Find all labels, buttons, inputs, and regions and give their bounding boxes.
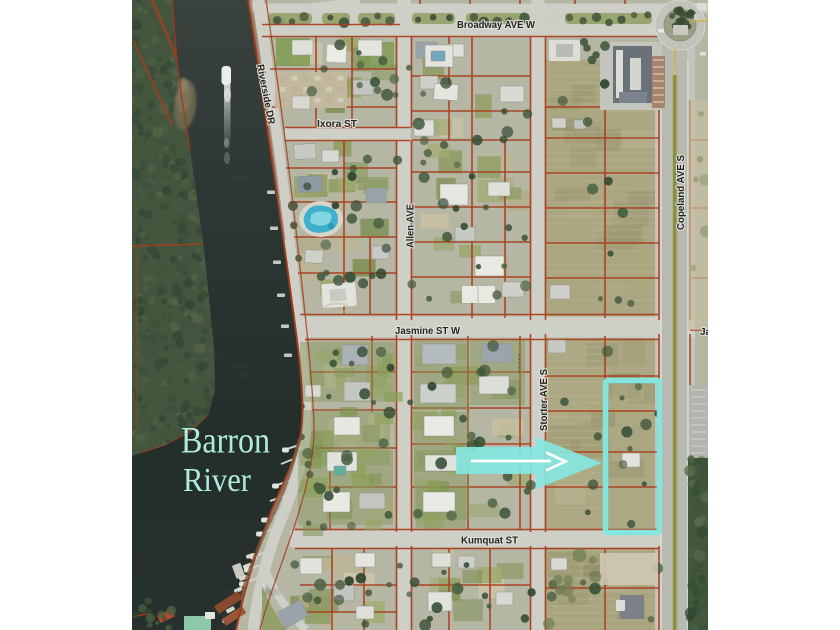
svg-text:Barron: Barron [181, 421, 270, 462]
svg-text:Allen AVE: Allen AVE [406, 204, 417, 248]
svg-text:Broadway AVE W: Broadway AVE W [457, 20, 536, 31]
svg-text:Storter AVE S: Storter AVE S [539, 369, 550, 431]
svg-text:Ixora ST: Ixora ST [317, 119, 357, 130]
svg-text:River: River [183, 462, 252, 499]
svg-text:Copeland AVE S: Copeland AVE S [676, 155, 687, 230]
svg-text:Kumquat ST: Kumquat ST [461, 536, 518, 547]
svg-text:Jasmine ST W: Jasmine ST W [395, 326, 461, 337]
